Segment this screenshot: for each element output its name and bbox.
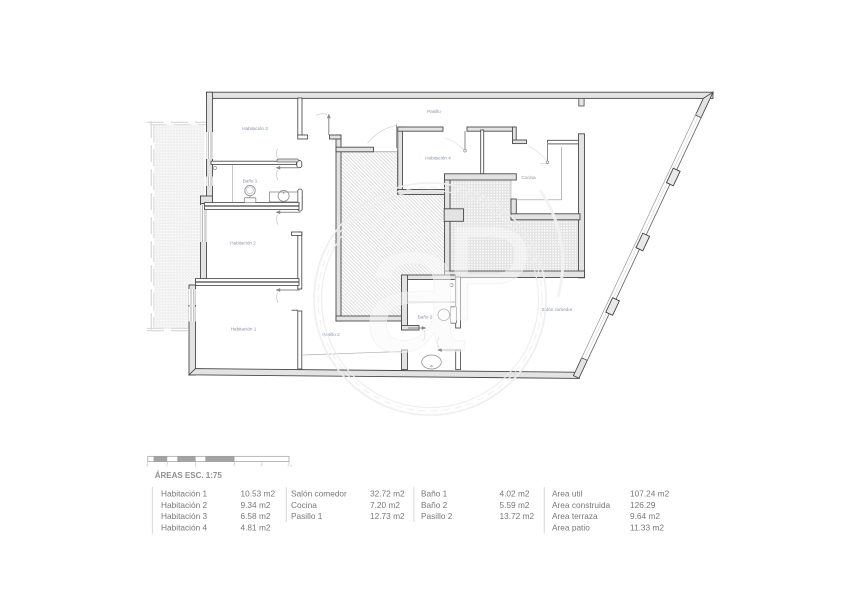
svg-text:Habitación 3: Habitación 3 [161,511,208,521]
svg-text:Pasillo 2: Pasillo 2 [421,511,453,521]
svg-text:Habitación 2: Habitación 2 [230,240,256,245]
svg-text:4.02 m2: 4.02 m2 [500,489,530,499]
svg-text:13.72 m2: 13.72 m2 [500,511,535,521]
svg-text:Salón comedor: Salón comedor [291,489,347,499]
svg-text:ÁREAS ESC. 1:75: ÁREAS ESC. 1:75 [155,471,223,480]
svg-text:Pasillo: Pasillo [427,109,441,114]
svg-text:Baño 1: Baño 1 [421,489,448,499]
svg-text:9.34 m2: 9.34 m2 [241,500,271,510]
svg-text:4.81 m2: 4.81 m2 [241,522,271,532]
svg-text:32.72 m2: 32.72 m2 [370,489,405,499]
svg-text:Pasillo 1: Pasillo 1 [291,511,323,521]
svg-text:Habitación 4: Habitación 4 [425,155,451,160]
svg-text:Area patio: Area patio [552,522,590,532]
svg-text:5 m: 5 m [288,464,293,468]
svg-text:Baño 1: Baño 1 [243,178,258,183]
svg-text:Habitación 3: Habitación 3 [242,126,268,131]
svg-text:Area util: Area util [552,489,583,499]
svg-text:107.24 m2: 107.24 m2 [630,489,670,499]
svg-text:Baño 2: Baño 2 [421,500,448,510]
svg-text:6.58 m2: 6.58 m2 [241,511,271,521]
svg-text:7.20 m2: 7.20 m2 [370,500,400,510]
svg-text:Habitación 2: Habitación 2 [161,500,208,510]
svg-text:Cocina: Cocina [291,500,317,510]
svg-text:5.59 m2: 5.59 m2 [500,500,530,510]
svg-text:126.29: 126.29 [630,500,656,510]
svg-text:10.53 m2: 10.53 m2 [241,489,276,499]
svg-text:12.73 m2: 12.73 m2 [370,511,405,521]
svg-text:9.64 m2: 9.64 m2 [630,511,660,521]
svg-text:Area terraza: Area terraza [552,511,598,521]
svg-text:Cocina: Cocina [521,175,536,180]
svg-text:Habitación 4: Habitación 4 [161,522,208,532]
svg-text:Pasillo 2: Pasillo 2 [322,332,340,337]
svg-text:P: P [444,198,534,349]
svg-text:11.33 m2: 11.33 m2 [630,522,664,532]
svg-text:Area construida: Area construida [552,500,610,510]
svg-text:Habitación 1: Habitación 1 [161,489,208,499]
svg-text:Habitación 1: Habitación 1 [231,326,257,331]
